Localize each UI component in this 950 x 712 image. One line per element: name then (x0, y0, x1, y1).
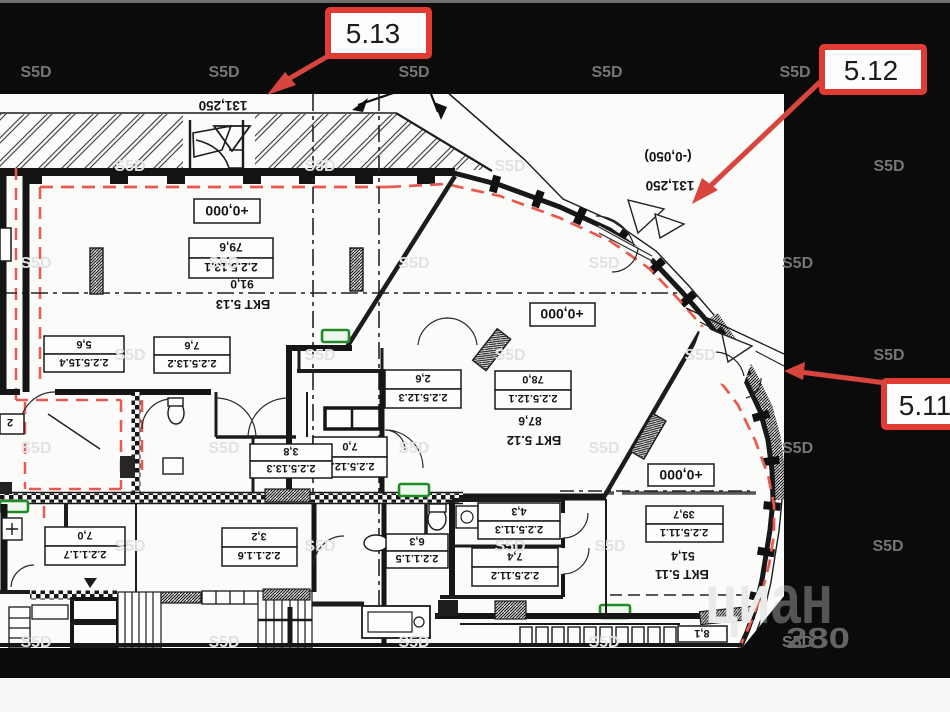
svg-text:S5D: S5D (594, 538, 625, 555)
svg-text:S5D: S5D (114, 538, 145, 555)
svg-text:S5D: S5D (304, 158, 335, 175)
svg-text:131,250: 131,250 (199, 98, 248, 113)
svg-text:79,6: 79,6 (219, 240, 243, 254)
svg-text:S5D: S5D (782, 255, 813, 272)
svg-text:280: 280 (786, 623, 850, 655)
svg-text:S5D: S5D (208, 634, 239, 651)
svg-text:78,0: 78,0 (522, 373, 543, 385)
svg-text:S5D: S5D (779, 64, 810, 81)
svg-text:S5D: S5D (398, 440, 429, 457)
svg-text:БКТ 5.13: БКТ 5.13 (216, 297, 270, 312)
svg-text:S5D: S5D (398, 634, 429, 651)
svg-text:БКТ 5.11: БКТ 5.11 (655, 567, 709, 582)
svg-text:7,6: 7,6 (184, 339, 199, 351)
svg-text:7,0: 7,0 (77, 529, 92, 541)
svg-text:2,6: 2,6 (415, 372, 430, 384)
svg-text:2.2.5.13.2: 2.2.5.13.2 (168, 357, 217, 369)
svg-text:5,6: 5,6 (76, 338, 91, 350)
svg-text:БКТ 5.12: БКТ 5.12 (507, 433, 561, 448)
svg-text:2.2.1.1.6: 2.2.1.1.6 (238, 549, 281, 561)
svg-text:+0,000: +0,000 (205, 203, 248, 219)
svg-text:S5D: S5D (398, 255, 429, 272)
svg-text:5.13: 5.13 (346, 18, 401, 49)
svg-text:2.2.5.12.2: 2.2.5.12.2 (326, 460, 375, 472)
svg-text:S5D: S5D (873, 347, 904, 364)
svg-text:S5D: S5D (684, 347, 715, 364)
svg-text:S5D: S5D (304, 538, 335, 555)
svg-text:S5D: S5D (208, 440, 239, 457)
svg-text:S5D: S5D (588, 255, 619, 272)
svg-text:2.2.5.13.3: 2.2.5.13.3 (267, 462, 316, 474)
svg-text:2.2.5.11.1: 2.2.5.11.1 (660, 526, 708, 538)
svg-text:3,2: 3,2 (251, 530, 266, 542)
svg-text:2.2.1.1.7: 2.2.1.1.7 (64, 548, 107, 560)
svg-text:S5D: S5D (208, 64, 239, 81)
svg-text:S5D: S5D (494, 538, 525, 555)
svg-text:5.12: 5.12 (844, 55, 899, 86)
svg-text:S5D: S5D (20, 255, 51, 272)
svg-text:S5D: S5D (782, 440, 813, 457)
svg-text:S5D: S5D (304, 347, 335, 364)
svg-text:39,7: 39,7 (673, 508, 694, 520)
svg-text:S5D: S5D (588, 440, 619, 457)
svg-text:S5D: S5D (873, 158, 904, 175)
svg-text:4,3: 4,3 (511, 505, 526, 517)
svg-text:S5D: S5D (494, 347, 525, 364)
svg-text:(-0,050): (-0,050) (644, 149, 691, 164)
svg-text:2.2.5.12.3: 2.2.5.12.3 (399, 391, 448, 403)
svg-text:2.2.5.11.2: 2.2.5.11.2 (491, 569, 539, 581)
svg-text:131,250: 131,250 (646, 178, 695, 193)
svg-text:S5D: S5D (591, 64, 622, 81)
svg-text:7,0: 7,0 (342, 440, 357, 452)
svg-text:+0,000: +0,000 (540, 306, 583, 322)
svg-text:2.2.1.1.5: 2.2.1.1.5 (396, 552, 439, 564)
svg-text:S5D: S5D (588, 634, 619, 651)
svg-text:S5D: S5D (114, 347, 145, 364)
svg-text:2.2.5.15.4: 2.2.5.15.4 (59, 356, 109, 368)
svg-text:2: 2 (7, 416, 13, 428)
svg-text:87,6: 87,6 (518, 414, 542, 428)
svg-text:91,0: 91,0 (230, 277, 254, 291)
svg-text:2.2.5.11.3: 2.2.5.11.3 (495, 523, 543, 535)
svg-text:S5D: S5D (20, 440, 51, 457)
svg-text:S5D: S5D (114, 158, 145, 175)
svg-text:6,3: 6,3 (409, 535, 424, 547)
svg-text:S5D: S5D (20, 634, 51, 651)
svg-text:S5D: S5D (20, 64, 51, 81)
svg-text:S5D: S5D (494, 158, 525, 175)
svg-text:+0,000: +0,000 (659, 467, 702, 483)
svg-text:S5D: S5D (398, 64, 429, 81)
svg-text:S5D: S5D (208, 255, 239, 272)
svg-text:51,4: 51,4 (671, 549, 695, 563)
svg-text:3,8: 3,8 (283, 445, 298, 457)
svg-text:5.11: 5.11 (899, 390, 950, 421)
svg-text:S5D: S5D (872, 538, 903, 555)
svg-text:2.2.5.12.1: 2.2.5.12.1 (509, 392, 558, 404)
